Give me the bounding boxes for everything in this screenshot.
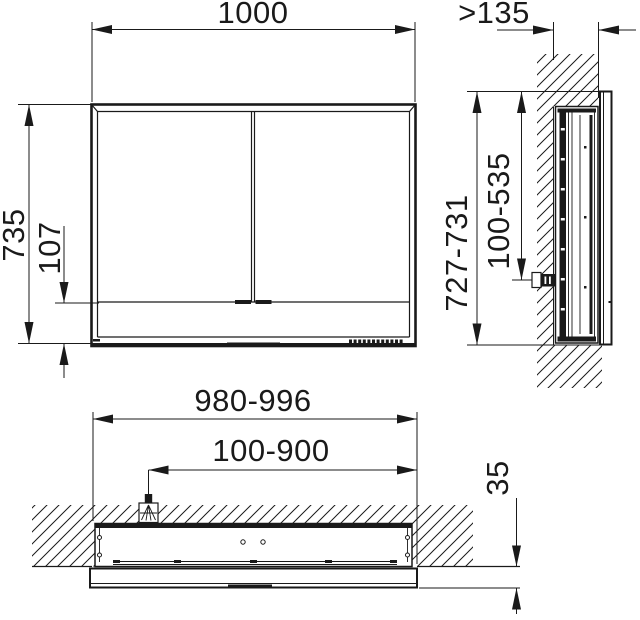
dim-front-height: 735 xyxy=(0,195,27,275)
left-marker-dash xyxy=(93,339,100,342)
top-view xyxy=(32,470,520,588)
sensor-strip-plan xyxy=(228,585,272,589)
dim-cable-position-range: 100-900 xyxy=(191,436,351,464)
cabinet-back-bar xyxy=(95,524,412,529)
technical-drawing-page: 1000 >135 735 107 727-731 100-535 980-99… xyxy=(0,0,640,620)
dim-niche-depth: >135 xyxy=(434,0,554,26)
dim-niche-width-range: 980-996 xyxy=(173,386,333,414)
dim-front-width: 1000 xyxy=(193,0,313,26)
side-view xyxy=(512,54,612,388)
mains-connection-symbol xyxy=(512,273,555,288)
cable-entry-symbol xyxy=(139,470,158,523)
dim-side-height-range: 727-731 xyxy=(442,178,470,328)
dim-outlet-height-range: 100-535 xyxy=(484,136,512,286)
cabinet-outline xyxy=(92,105,416,347)
dim-protrusion-depth: 35 xyxy=(483,448,511,508)
technical-drawing xyxy=(0,0,640,620)
dim-front-bottom-section: 107 xyxy=(35,208,63,288)
door-edge-tick xyxy=(609,301,612,303)
front-view xyxy=(92,105,416,348)
mirror-door-profile xyxy=(600,92,612,345)
sensor-strip xyxy=(227,343,280,348)
